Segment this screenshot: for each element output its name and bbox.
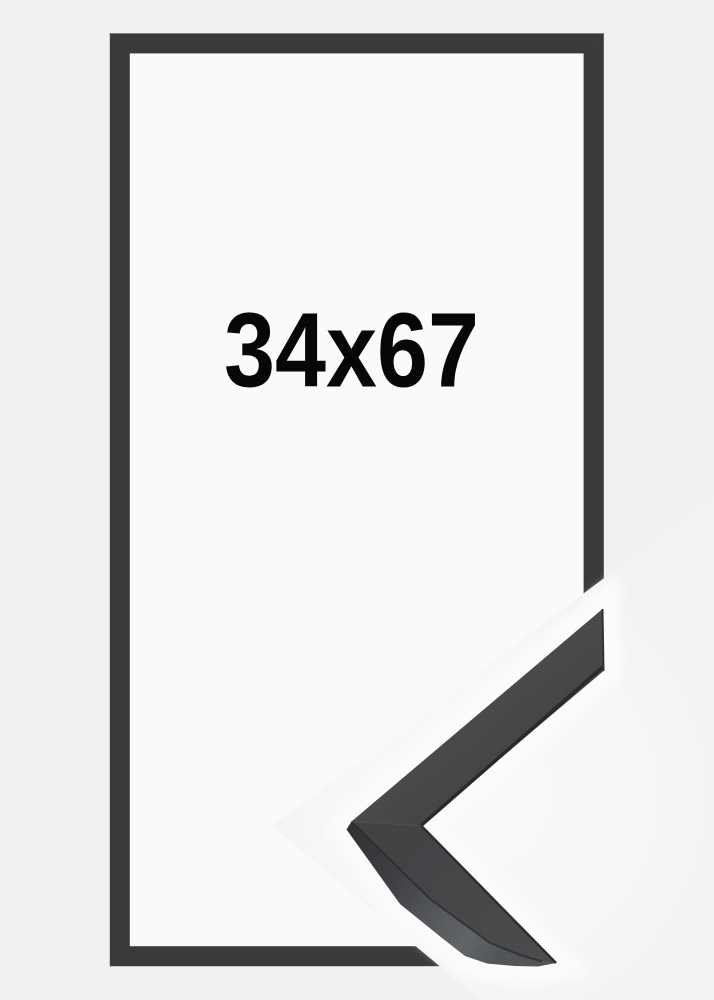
svg-text:34x67: 34x67 [224, 292, 479, 410]
